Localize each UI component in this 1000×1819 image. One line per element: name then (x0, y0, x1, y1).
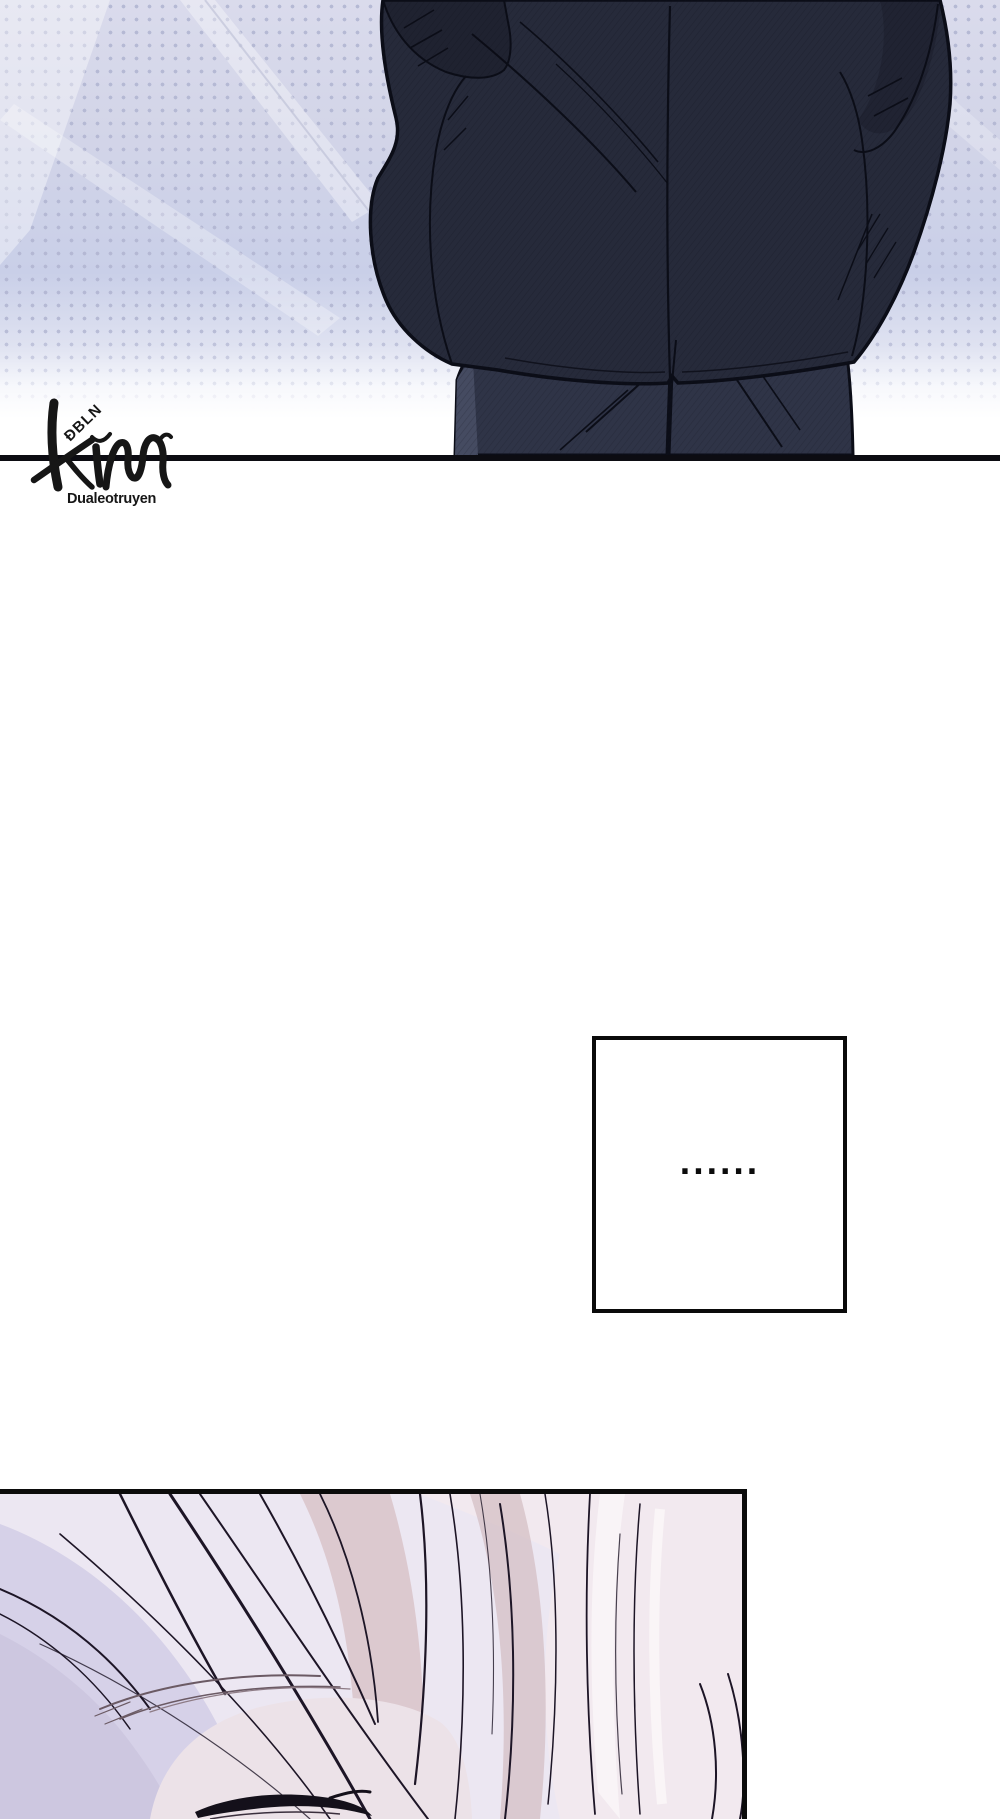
face-illustration: Close-up of a sleeping face with pale pi… (0, 1494, 742, 1819)
watermark-site-text: Dualeotruyen (67, 491, 156, 507)
bottom-panel: Close-up of a sleeping face with pale pi… (0, 1489, 747, 1819)
comic-page: Back view of a man in a dark navy suit s… (0, 0, 1000, 1819)
watermark-tag-text: ĐBLN (61, 401, 106, 445)
speech-box: ...... (592, 1036, 847, 1313)
watermark-logo: Kim ĐBLN Dualeotruyen (30, 390, 190, 512)
ellipsis-text: ...... (679, 1150, 759, 1180)
suit-figure-illustration: Back view of a man in a dark navy suit s… (0, 0, 1000, 455)
